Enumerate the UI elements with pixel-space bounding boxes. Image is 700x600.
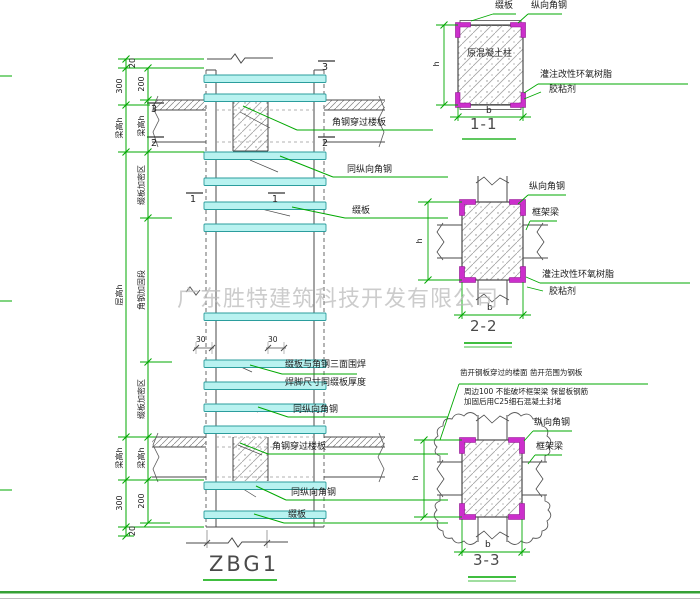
dim-20-top: 20 [129,58,137,68]
s33-title: 3-3 [473,553,501,568]
dim-20-bottom: 20 [129,526,137,536]
s33-note-line3: 加固后用C25细石混凝土封堵 [464,398,561,406]
s11-title: 1-1 [470,117,498,132]
dimension-chains [0,59,204,536]
s33-label-longitudinal-angle: 纵向角钢 [534,419,570,428]
s11-label-batten: 缀板 [495,2,513,11]
dim-beam-height-inner-bottom: 梁高h [138,447,146,468]
s11-label-original-column: 原混凝土柱 [467,50,512,59]
dim-300-bottom: 300 [116,495,124,510]
s22-label-longitudinal-angle: 纵向角钢 [529,183,565,192]
drawing-canvas: 广东胜特建筑科技开发有限公司 ZBG1 20 300 梁高h 层高h 梁高h 3… [0,0,700,600]
s22-label-frame-beam: 框架梁 [532,209,559,218]
s11-label-epoxy-line1: 灌注改性环氧树脂 [540,71,612,80]
cut-mark-1-left: 1 [190,195,196,205]
drawing-title: ZBG1 [209,554,279,575]
dim-dense-zone-top: 缀板加密区 [138,165,146,205]
label-batten-bottom: 缀板 [288,511,306,520]
s22-title: 2-2 [470,319,498,334]
label-angle-through-slab-top: 角钢穿过楼板 [332,119,386,128]
label-same-longitudinal-angle-bottom: 同纵向角钢 [291,489,336,498]
watermark: 广东胜特建筑科技开发有限公司 [177,289,499,311]
dim-30-left: 30 [196,336,206,344]
label-batten-top: 缀板 [352,207,370,216]
label-weld-note-line1: 缀板与角钢三面围焊 [285,361,366,370]
elevation-leaders [203,106,448,580]
dim-30-right: 30 [268,336,278,344]
label-angle-through-slab-bottom: 角钢穿过楼板 [272,443,326,452]
dim-beam-height-top: 梁高h [116,117,124,138]
cut-mark-3-left: 3 [151,105,157,115]
s33-label-frame-beam: 框架梁 [536,443,563,452]
s22-dim-h: h [416,238,424,243]
s22-label-epoxy-line1: 灌注改性环氧树脂 [542,271,614,280]
cut-mark-2-left: 2 [151,139,157,149]
s11-label-longitudinal-angle: 纵向角钢 [531,2,567,11]
dim-200-top: 200 [138,76,146,91]
s33-dim-h: h [412,475,420,480]
cut-mark-2-right: 2 [322,139,328,149]
s33-note-line1: 凿开钢板穿过的楼面 凿开范围为钢板 [460,369,582,377]
s11-dim-h: h [433,61,441,66]
bottom-border-line [0,591,700,594]
section-3-3-linework [414,384,648,581]
dim-200-bottom: 200 [138,493,146,508]
s33-dim-b: b [485,541,491,550]
dim-beam-height-inner-top: 梁高h [138,115,146,136]
cut-mark-1-right: 1 [272,195,278,205]
s22-label-epoxy-line2: 胶粘剂 [549,288,576,297]
dim-300-top: 300 [116,78,124,93]
label-same-longitudinal-angle-mid: 同纵向角钢 [293,406,338,415]
s11-label-epoxy-line2: 胶粘剂 [549,86,576,95]
s33-note-line2: 周边100 不能破坏框架梁 保留板钢筋 [464,388,588,396]
section-2-2-linework [418,176,690,347]
dim-dense-zone-bottom: 缀板加密区 [138,379,146,419]
dim-strengthen-zone: 角钢加固段 [138,270,146,310]
cut-mark-3-right: 3 [322,63,328,73]
label-weld-note-line2: 焊脚尺寸同缀板厚度 [285,379,366,388]
dim-beam-height-bottom: 梁高h [116,447,124,468]
dim-storey-height: 层高h [116,284,124,305]
label-same-longitudinal-angle-top: 同纵向角钢 [347,166,392,175]
